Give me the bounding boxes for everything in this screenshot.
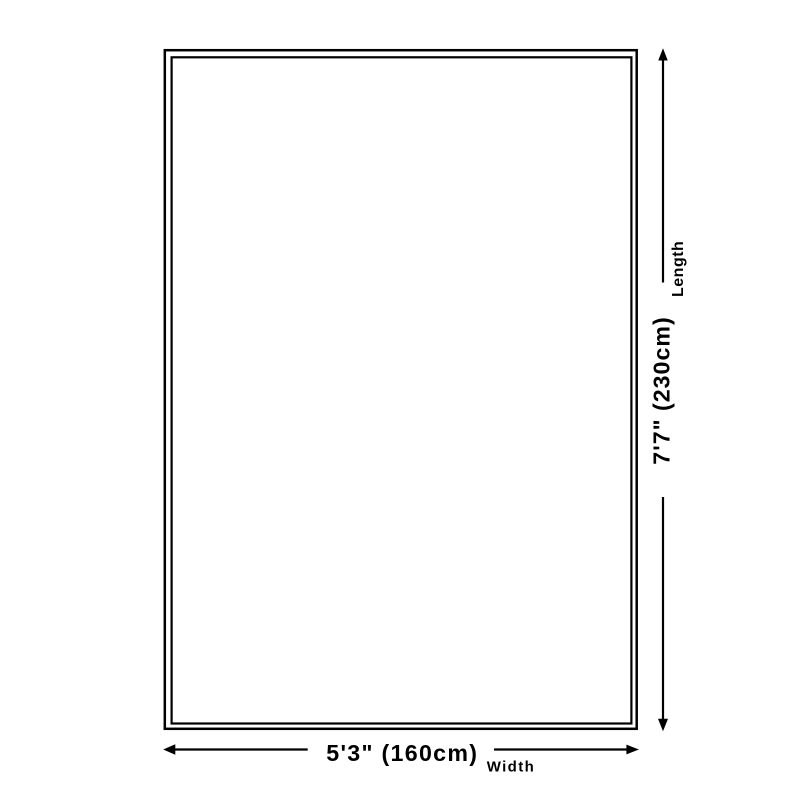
svg-text:Width: Width: [487, 758, 536, 775]
svg-text:7'7" (230cm): 7'7" (230cm): [649, 316, 675, 464]
svg-text:Length: Length: [670, 241, 687, 297]
svg-text:5'3" (160cm): 5'3" (160cm): [326, 740, 478, 766]
